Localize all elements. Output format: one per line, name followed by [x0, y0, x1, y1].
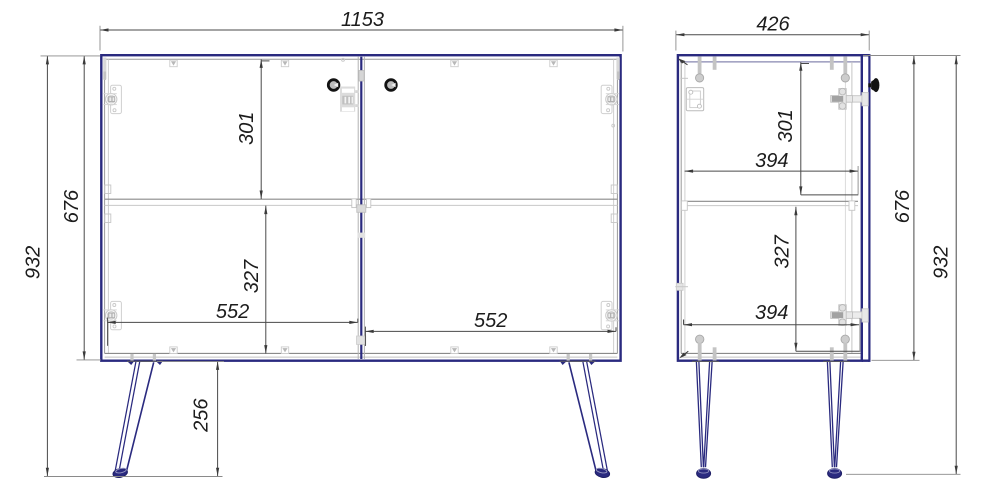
svg-text:394: 394 [755, 302, 788, 324]
svg-text:256: 256 [191, 398, 213, 433]
svg-text:676: 676 [61, 189, 83, 223]
svg-text:932: 932 [23, 246, 45, 279]
svg-text:327: 327 [241, 259, 263, 293]
svg-text:1153: 1153 [341, 9, 384, 31]
svg-text:676: 676 [892, 189, 914, 223]
svg-text:426: 426 [756, 13, 790, 35]
svg-text:932: 932 [930, 246, 952, 279]
svg-text:327: 327 [772, 234, 794, 268]
svg-text:301: 301 [775, 109, 797, 142]
svg-text:552: 552 [474, 310, 507, 332]
svg-text:301: 301 [236, 112, 258, 145]
svg-text:394: 394 [755, 150, 788, 172]
svg-text:552: 552 [216, 301, 249, 323]
